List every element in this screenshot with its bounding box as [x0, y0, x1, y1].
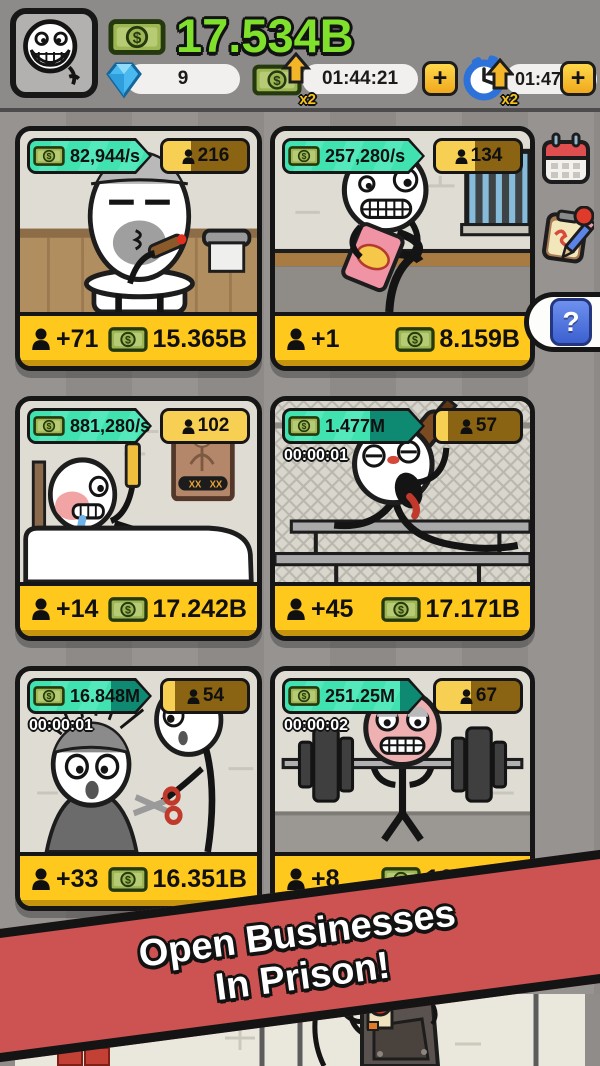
business-card-toilet[interactable]: 82,944/s 216 +71 15.365B: [15, 126, 262, 371]
gem-icon: [102, 60, 146, 100]
worker-count-badge: 57: [433, 408, 523, 444]
clipboard-pencil-icon: [538, 206, 594, 266]
person-icon: [181, 419, 196, 434]
person-icon: [285, 868, 307, 890]
cash-icon: [33, 414, 65, 438]
business-card-bed[interactable]: XX XX: [15, 396, 262, 641]
person-icon: [30, 598, 52, 620]
player-avatar[interactable]: [10, 8, 98, 98]
person-icon: [459, 689, 474, 704]
cash-icon: [108, 325, 148, 354]
person-icon: [186, 689, 201, 704]
time-boost-add-button[interactable]: +: [560, 61, 596, 96]
person-icon: [454, 149, 469, 164]
hire-bar[interactable]: +14 17.242B: [20, 582, 257, 636]
hire-price: 17.242B: [108, 595, 247, 624]
income-rate-badge: 881,280/s: [27, 408, 152, 444]
hire-bar[interactable]: +33 16.351B: [20, 852, 257, 906]
tasks-button[interactable]: [538, 206, 594, 266]
svg-text:XX: XX: [189, 479, 202, 490]
worker-count-badge: 54: [160, 678, 250, 714]
hire-workers-button[interactable]: +14: [30, 595, 98, 624]
svg-text:XX: XX: [210, 479, 223, 490]
income-rate-badge: 257,280/s: [282, 138, 425, 174]
stickman-avatar-icon: [16, 14, 92, 90]
production-timer: 00:00:01: [284, 447, 348, 465]
hire-workers-button[interactable]: +71: [30, 325, 98, 354]
cash-icon: [395, 325, 435, 354]
hire-price: 15.365B: [108, 325, 247, 354]
worker-count-badge: 216: [160, 138, 250, 174]
game-screen: 17.534B 9 x2 01:44:21 +: [0, 0, 600, 1066]
calendar-icon: [540, 132, 592, 186]
help-button[interactable]: ?: [524, 292, 600, 352]
business-card-drinks[interactable]: 1.477M 57 00:00:01 +45 17.171B: [270, 396, 535, 641]
income-rate-badge: 16.848M: [27, 678, 152, 714]
question-mark-icon: ?: [550, 298, 592, 346]
worker-count-badge: 102: [160, 408, 250, 444]
income-boost-icon: x2: [252, 52, 312, 104]
top-bar: 17.534B 9 x2 01:44:21 +: [0, 0, 600, 112]
notification-dot: [575, 207, 593, 225]
person-icon: [285, 598, 307, 620]
person-icon: [30, 328, 52, 350]
business-card-snacks[interactable]: 257,280/s 134 +1 8.159B: [270, 126, 535, 371]
time-boost-multiplier: x2: [501, 91, 518, 108]
time-boost-icon: x2: [462, 52, 514, 104]
cash-icon: [33, 144, 65, 168]
income-boost-multiplier: x2: [299, 91, 316, 108]
cash-icon: [108, 16, 166, 58]
business-card-barber[interactable]: 16.848M 54 00:00:01 +33 16.351B: [15, 666, 262, 911]
hire-bar[interactable]: +1 8.159B: [275, 312, 530, 366]
hire-workers-button[interactable]: +1: [285, 325, 340, 354]
person-icon: [285, 328, 307, 350]
cash-icon: [381, 595, 421, 624]
income-rate-badge: 251.25M: [282, 678, 425, 714]
worker-count-badge: 134: [433, 138, 523, 174]
income-boost-add-button[interactable]: +: [422, 61, 458, 96]
hire-workers-button[interactable]: +45: [285, 595, 353, 624]
cash-icon: [288, 684, 320, 708]
gem-count: 9: [178, 68, 189, 90]
person-icon: [30, 868, 52, 890]
hire-price: 16.351B: [108, 865, 247, 894]
person-icon: [459, 419, 474, 434]
hire-workers-button[interactable]: +33: [30, 865, 98, 894]
income-boost-timer: 01:44:21: [302, 64, 418, 94]
income-rate-badge: 1.477M: [282, 408, 425, 444]
production-timer: 00:00:01: [29, 717, 93, 735]
calendar-button[interactable]: [540, 132, 592, 186]
hire-bar[interactable]: +45 17.171B: [275, 582, 530, 636]
income-rate-badge: 82,944/s: [27, 138, 152, 174]
production-timer: 00:00:02: [284, 717, 348, 735]
cash-icon: [33, 684, 65, 708]
cash-icon: [288, 144, 320, 168]
worker-count-badge: 67: [433, 678, 523, 714]
hire-price: 17.171B: [381, 595, 520, 624]
cash-icon: [108, 865, 148, 894]
hire-price: 8.159B: [395, 325, 520, 354]
hire-bar[interactable]: +71 15.365B: [20, 312, 257, 366]
person-icon: [181, 149, 196, 164]
cash-icon: [108, 595, 148, 624]
cash-icon: [288, 414, 320, 438]
business-grid: 82,944/s 216 +71 15.365B: [15, 126, 535, 911]
